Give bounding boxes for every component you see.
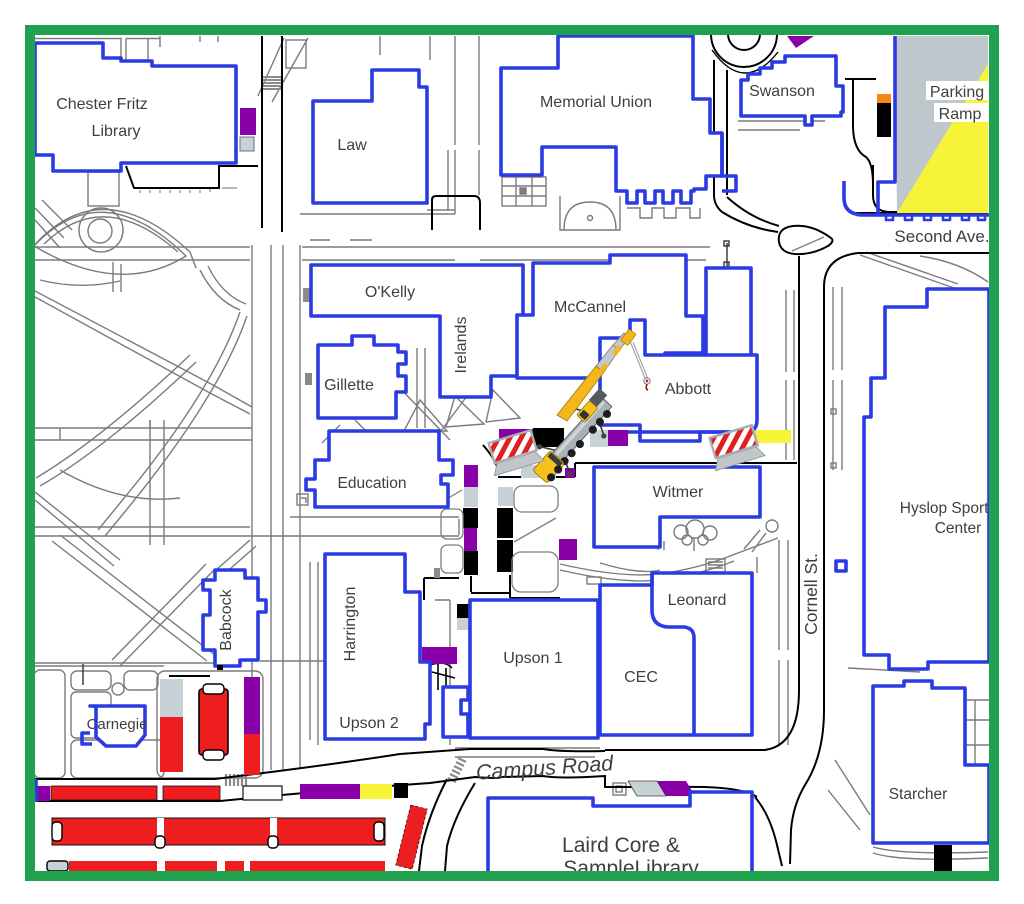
- svg-text:CEC: CEC: [624, 669, 658, 686]
- svg-text:Laird Core &: Laird Core &: [562, 834, 680, 857]
- svg-text:McCannel: McCannel: [554, 299, 626, 316]
- svg-text:Witmer: Witmer: [653, 484, 704, 501]
- svg-text:Babcock: Babcock: [218, 588, 235, 650]
- svg-text:Law: Law: [337, 137, 367, 154]
- svg-text:Starcher: Starcher: [889, 786, 948, 803]
- svg-text:Leonard: Leonard: [668, 592, 727, 609]
- svg-text:Ramp: Ramp: [939, 106, 982, 123]
- svg-text:Upson 1: Upson 1: [503, 650, 563, 667]
- svg-text:Cornell St.: Cornell St.: [801, 553, 821, 635]
- svg-text:Chester Fritz: Chester Fritz: [56, 96, 148, 113]
- svg-text:Gillette: Gillette: [324, 377, 374, 394]
- svg-text:Education: Education: [338, 475, 407, 492]
- svg-text:Center: Center: [935, 520, 982, 537]
- svg-text:Upson 2: Upson 2: [339, 715, 399, 732]
- svg-text:Swanson: Swanson: [749, 83, 815, 100]
- svg-text:Second Ave.: Second Ave.: [894, 227, 989, 246]
- svg-text:Carnegie: Carnegie: [87, 716, 148, 733]
- svg-text:O'Kelly: O'Kelly: [365, 284, 415, 301]
- svg-text:Memorial Union: Memorial Union: [540, 94, 652, 111]
- svg-text:Parking: Parking: [930, 84, 984, 101]
- svg-text:Abbott: Abbott: [665, 381, 712, 398]
- svg-text:Library: Library: [92, 123, 141, 140]
- svg-text:Irelands: Irelands: [453, 317, 470, 374]
- svg-text:Hyslop Sports: Hyslop Sports: [900, 500, 997, 517]
- svg-text:Harrington: Harrington: [342, 587, 359, 662]
